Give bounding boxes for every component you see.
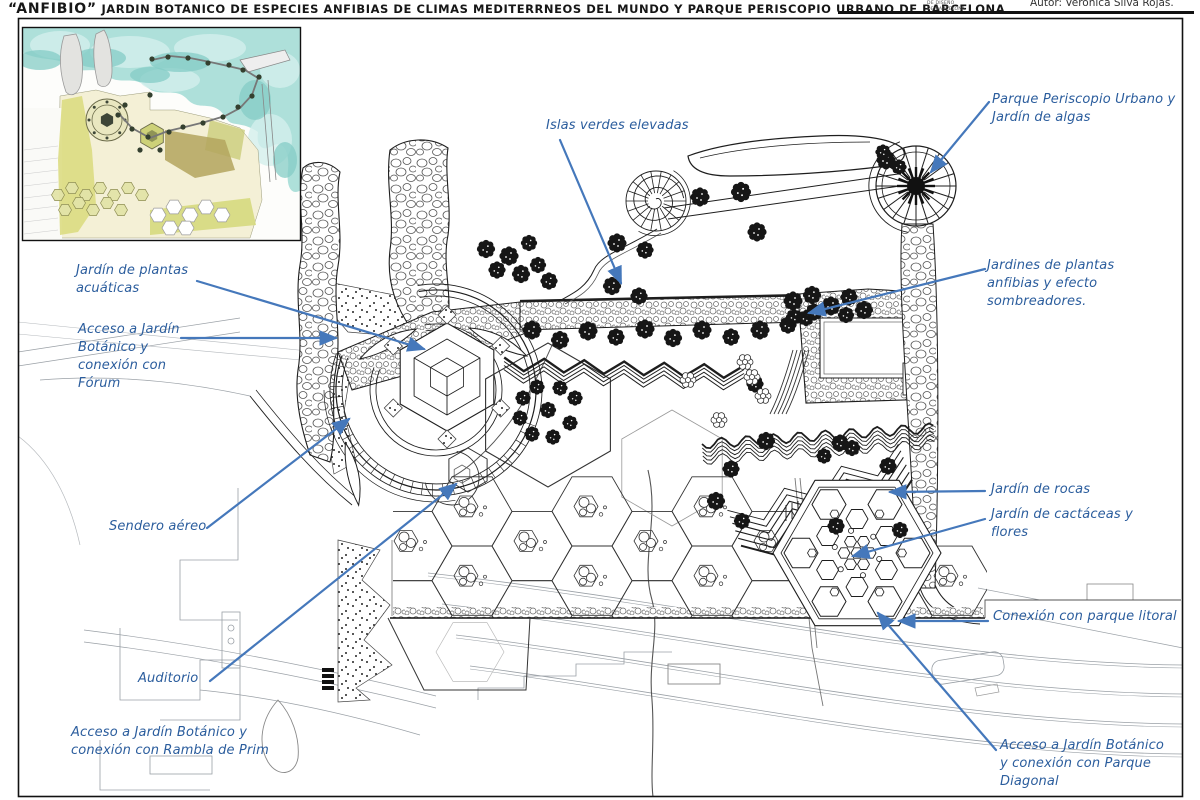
label-sendero-aereo: Sendero aéreo [109,518,206,536]
label-auditorio: Auditorio [138,670,198,688]
label-plantas-acuaticas: Jardín de plantas acuáticas [76,262,204,298]
label-acceso-forum: Acceso a Jardín Botánico y conexión con … [78,321,190,393]
label-parque-diagonal: Acceso a Jardín Botánico y conexión con … [1000,737,1176,791]
site-location-inset [18,27,301,241]
label-jardin-rocas: Jardín de rocas [991,481,1090,499]
label-periscopio: Parque Periscopio Urbano y Jardín de alg… [992,91,1188,127]
label-islas-verdes: Islas verdes elevadas [546,117,689,135]
label-parque-litoral: Conexión con parque litoral [993,608,1177,626]
label-rambla-prim: Acceso a Jardín Botánico y conexión con … [71,724,281,760]
plan-sheet: “ANFIBIO” JARDIN BOTANICO DE ESPECIES AN… [0,0,1200,800]
label-cactaceas: Jardín de cactáceas y flores [991,506,1137,542]
label-plantas-anfibias: Jardines de plantas anfibias y efecto so… [987,257,1137,311]
